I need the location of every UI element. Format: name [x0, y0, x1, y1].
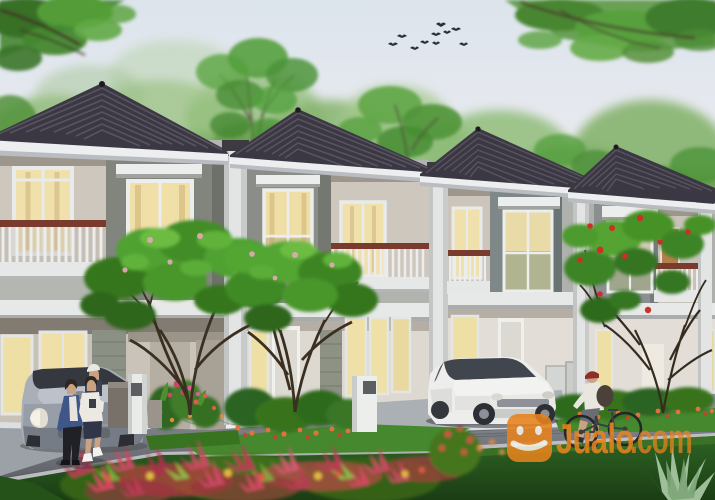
svg-text:Jualo: Jualo — [556, 415, 634, 462]
svg-text:.com: .com — [630, 415, 692, 462]
